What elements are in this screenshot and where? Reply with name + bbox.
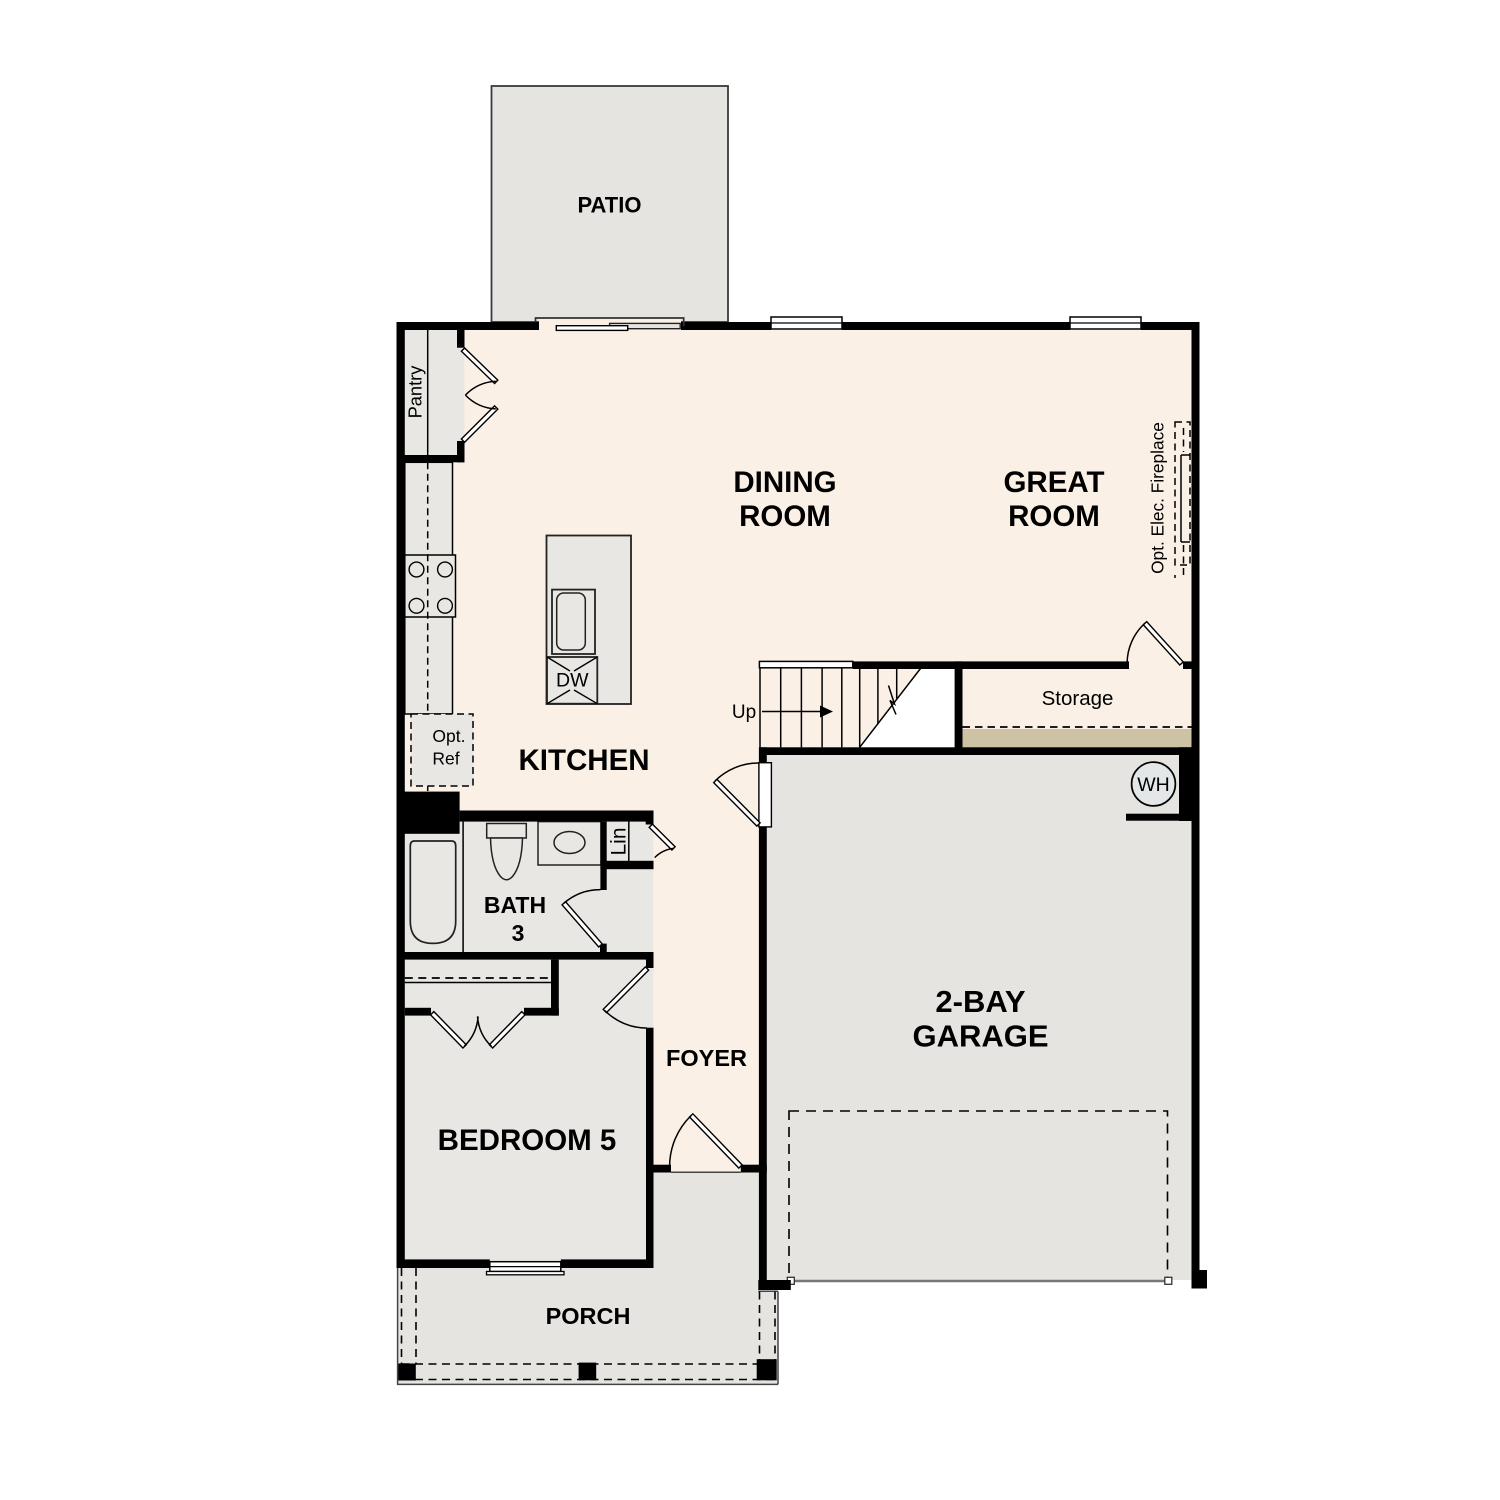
svg-text:Lin: Lin [608, 827, 631, 855]
svg-text:PORCH: PORCH [546, 1303, 631, 1329]
svg-text:Ref: Ref [432, 749, 459, 769]
svg-text:GREAT: GREAT [1003, 466, 1104, 499]
svg-text:DINING: DINING [733, 466, 836, 499]
svg-text:FOYER: FOYER [666, 1045, 747, 1071]
svg-text:Storage: Storage [1042, 687, 1114, 710]
svg-text:BATH: BATH [484, 892, 546, 918]
svg-text:PATIO: PATIO [578, 193, 642, 218]
svg-text:GARAGE: GARAGE [912, 1019, 1048, 1054]
svg-text:WH: WH [1137, 774, 1170, 796]
svg-text:ROOM: ROOM [1008, 500, 1100, 533]
svg-text:KITCHEN: KITCHEN [518, 744, 649, 777]
svg-text:Pantry: Pantry [404, 365, 425, 419]
svg-text:DW: DW [556, 670, 589, 692]
svg-text:ROOM: ROOM [739, 500, 831, 533]
svg-text:Opt. Elec. Fireplace: Opt. Elec. Fireplace [1148, 422, 1168, 574]
svg-text:Opt.: Opt. [432, 726, 465, 746]
svg-text:BEDROOM 5: BEDROOM 5 [438, 1124, 617, 1157]
svg-text:Up: Up [732, 702, 756, 723]
svg-text:2-BAY: 2-BAY [935, 984, 1025, 1019]
svg-text:3: 3 [512, 920, 525, 946]
